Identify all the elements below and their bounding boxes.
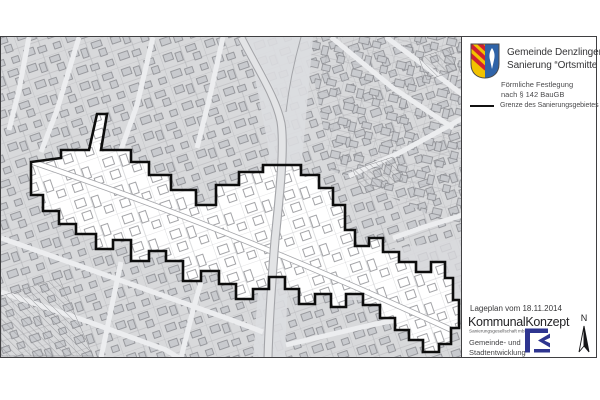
legend-header: Gemeinde Denzlingen Sanierung “Ortsmitte… (470, 43, 600, 79)
map-canvas (1, 37, 463, 357)
subtitle-line1: Förmliche Festlegung (501, 80, 573, 90)
department-line1: Gemeinde- und (469, 338, 526, 348)
plan-date: Lageplan vom 18.11.2014 (470, 304, 562, 313)
north-label: N (574, 314, 594, 323)
document-subtitle: Förmliche Festlegung nach § 142 BauGB (501, 80, 573, 99)
subtitle-line2: nach § 142 BauGB (501, 90, 573, 100)
north-indicator: N (574, 314, 594, 356)
company-name: KommunalKonzept (468, 315, 569, 329)
company-department: Gemeinde- und Stadtentwicklung (469, 338, 526, 357)
denzlingen-coat-of-arms-icon (470, 43, 500, 79)
document-title-line1: Gemeinde Denzlingen (507, 47, 600, 60)
legend-panel: Gemeinde Denzlingen Sanierung “Ortsmitte… (461, 37, 596, 357)
map-frame: Gemeinde Denzlingen Sanierung “Ortsmitte… (0, 36, 597, 358)
department-line2: Stadtentwicklung (469, 348, 526, 358)
boundary-line-swatch (470, 105, 494, 107)
lageplan-document: Gemeinde Denzlingen Sanierung “Ortsmitte… (0, 0, 600, 400)
north-arrow-icon (577, 324, 591, 354)
document-title: Gemeinde Denzlingen Sanierung “Ortsmitte… (507, 43, 600, 79)
legend-item-boundary: Grenze des Sanierungsgebietes (470, 102, 599, 109)
company-subtitle: Sanierungsgesellschaft mbH (469, 329, 528, 334)
cadastral-map (1, 37, 463, 357)
kommunalkonzept-logo-icon (524, 327, 551, 354)
document-title-line2: Sanierung “Ortsmitte II” (507, 60, 600, 73)
boundary-label: Grenze des Sanierungsgebietes (500, 102, 599, 109)
